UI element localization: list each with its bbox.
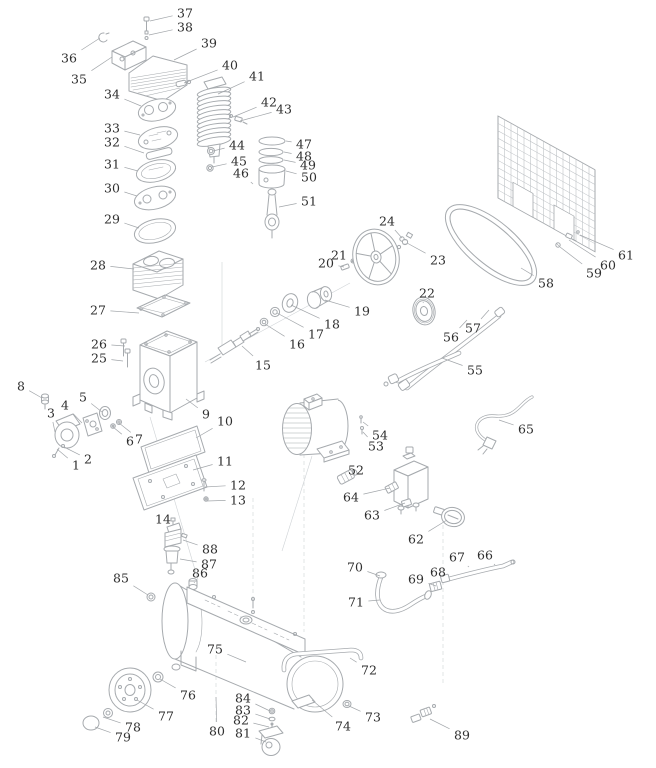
part-label-31: 31: [104, 157, 120, 172]
leader-line-65: [499, 420, 514, 425]
leader-line-7: [119, 423, 131, 432]
piston-illustration: [259, 165, 285, 188]
exploded-parts-diagram: 1234567891011121314151617181920212223242…: [0, 0, 656, 768]
leader-line-76: [160, 679, 176, 688]
leader-line-72: [350, 658, 357, 662]
leader-line-78: [103, 717, 121, 723]
part-label-58: 58: [538, 276, 554, 291]
leader-line-28: [110, 266, 134, 269]
leader-line-43: [240, 112, 272, 121]
leader-line-54: [363, 422, 368, 426]
valve-plate-33-illustration: [136, 123, 180, 153]
part-label-81: 81: [235, 726, 251, 741]
part-label-24: 24: [379, 214, 395, 229]
part-label-73: 73: [365, 710, 381, 725]
leader-line-47: [286, 141, 292, 142]
part-label-50: 50: [301, 170, 317, 185]
leader-line-34: [124, 99, 141, 106]
leader-line-26: [111, 345, 125, 346]
valve-plate-34-illustration: [136, 95, 178, 125]
part-label-21: 21: [331, 248, 347, 263]
part-label-46: 46: [233, 166, 249, 181]
leader-line-36: [81, 38, 100, 50]
leader-line-30: [124, 192, 137, 196]
part-label-10: 10: [217, 414, 233, 429]
part-label-84: 84: [235, 691, 251, 706]
leader-line-8: [29, 391, 42, 398]
part-label-38: 38: [177, 20, 193, 35]
part-label-55: 55: [467, 363, 483, 378]
part-label-11: 11: [217, 454, 233, 469]
leader-line-19: [325, 300, 350, 307]
part-label-74: 74: [335, 719, 351, 734]
motor-pulley-bolt-illustration: [397, 239, 407, 248]
part-label-85: 85: [113, 571, 129, 586]
leader-line-84: [255, 704, 270, 711]
part-label-68: 68: [430, 565, 446, 580]
axle-cap-illustration: [83, 709, 113, 731]
leader-line-59: [560, 247, 582, 264]
leader-line-57: [481, 310, 489, 319]
leader-line-67: [468, 566, 469, 567]
part-label-64: 64: [343, 490, 359, 505]
part-label-89: 89: [454, 728, 470, 743]
part-label-8: 8: [17, 379, 25, 394]
cylinder-gasket-illustration: [137, 295, 190, 317]
leader-line-87: [180, 559, 197, 562]
part-label-54: 54: [372, 428, 388, 443]
part-label-29: 29: [104, 212, 120, 227]
leader-line-13: [207, 500, 226, 501]
part-label-9: 9: [202, 407, 210, 422]
part-label-23: 23: [430, 253, 446, 268]
part-label-71: 71: [348, 595, 364, 610]
leader-line-82: [253, 723, 269, 727]
part-label-62: 62: [408, 532, 424, 547]
part-label-70: 70: [347, 560, 363, 575]
part-label-67: 67: [449, 550, 465, 565]
seal-ring-85-illustration: [147, 593, 155, 601]
head-gasket-29-illustration: [132, 215, 178, 247]
leader-line-25: [111, 360, 123, 361]
leader-line-73: [349, 706, 361, 711]
part-label-34: 34: [104, 87, 120, 102]
part-label-13: 13: [230, 493, 246, 508]
leader-line-85: [133, 586, 148, 595]
leader-line-17: [277, 313, 304, 327]
leader-line-27: [110, 311, 139, 313]
leader-line-6: [113, 427, 122, 434]
part-label-16: 16: [289, 337, 305, 352]
part-label-60: 60: [600, 258, 616, 273]
part-label-52: 52: [348, 463, 364, 478]
motor-illustration: [283, 394, 350, 462]
leader-line-39: [174, 49, 197, 60]
wheel-illustration: [109, 668, 151, 712]
part-label-42: 42: [261, 95, 277, 110]
leader-line-24: [395, 230, 402, 238]
part-label-80: 80: [209, 724, 225, 739]
part-label-3: 3: [47, 406, 55, 421]
leader-line-16: [265, 324, 285, 336]
part-label-32: 32: [104, 135, 120, 150]
part-label-75: 75: [207, 642, 223, 657]
shaft-washers-illustration: [260, 292, 300, 326]
leader-line-81: [255, 738, 266, 742]
part-label-37: 37: [177, 6, 193, 21]
shaft-seal-illustration: [100, 407, 122, 429]
part-label-39: 39: [201, 36, 217, 51]
flywheel-illustration: [348, 225, 405, 289]
part-label-18: 18: [324, 317, 340, 332]
leader-line-50: [286, 171, 297, 174]
part-label-87: 87: [201, 557, 217, 572]
leader-line-38: [149, 30, 173, 35]
leader-line-23: [407, 243, 426, 253]
cylinder-illustration: [133, 251, 183, 299]
leader-line-1: [57, 449, 68, 458]
leader-line-15: [242, 346, 253, 356]
part-label-79: 79: [115, 730, 131, 745]
valve-plate-30-illustration: [132, 182, 178, 214]
part-label-43: 43: [276, 102, 292, 117]
part-label-51: 51: [301, 194, 317, 209]
part-label-12: 12: [230, 478, 246, 493]
part-label-33: 33: [104, 121, 120, 136]
part-label-5: 5: [79, 390, 87, 405]
inlet-tube-illustration: [384, 353, 459, 386]
part-label-56: 56: [443, 330, 459, 345]
part-label-77: 77: [158, 709, 174, 724]
discharge-pipe-illustration: [398, 307, 506, 392]
leader-line-35: [91, 57, 112, 71]
part-label-7: 7: [135, 432, 143, 447]
part-label-69: 69: [408, 572, 424, 587]
leader-line-29: [124, 223, 139, 228]
pump-illustration: [53, 414, 81, 458]
leader-line-5: [91, 404, 102, 413]
part-label-1: 1: [72, 458, 80, 473]
part-label-4: 4: [61, 398, 69, 413]
pulley-hub-illustration: [306, 286, 333, 310]
leader-line-53: [363, 432, 368, 437]
part-label-40: 40: [222, 58, 238, 73]
leader-line-33: [124, 131, 140, 135]
leader-line-2: [64, 447, 80, 455]
leader-line-64: [363, 488, 390, 494]
leader-line-62: [428, 520, 447, 531]
bent-tube-illustration: [376, 572, 433, 611]
leader-line-51: [279, 204, 297, 208]
leader-line-37: [150, 16, 173, 21]
crankshaft-illustration: [210, 328, 260, 364]
part-label-26: 26: [91, 337, 107, 352]
leader-line-48: [284, 152, 292, 154]
part-label-6: 6: [126, 434, 134, 449]
leader-line-75: [227, 654, 246, 662]
crankcase-bolts-illustration: [121, 339, 130, 367]
crankcase-illustration: [133, 331, 204, 420]
part-label-27: 27: [90, 303, 106, 318]
leader-line-31: [124, 167, 138, 171]
part-label-30: 30: [104, 181, 120, 196]
leader-line-89: [430, 719, 450, 729]
leader-line-79: [95, 727, 111, 733]
part-label-28: 28: [90, 258, 106, 273]
part-label-44: 44: [229, 138, 245, 153]
leader-line-32: [124, 146, 144, 153]
part-label-63: 63: [364, 508, 380, 523]
part-label-2: 2: [84, 452, 92, 467]
part-labels: 1234567891011121314151617181920212223242…: [17, 6, 634, 745]
part-label-61: 61: [618, 248, 634, 263]
leader-line-12: [205, 486, 226, 487]
part-label-36: 36: [61, 51, 77, 66]
part-label-19: 19: [354, 304, 370, 319]
wheel-washer-illustration: [153, 672, 163, 682]
part-label-15: 15: [255, 358, 271, 373]
head-bolt-illustration: [144, 17, 149, 40]
part-label-17: 17: [308, 327, 324, 342]
part-label-25: 25: [91, 351, 107, 366]
leader-line-49: [284, 160, 296, 162]
part-label-72: 72: [361, 663, 377, 678]
part-label-22: 22: [419, 286, 435, 301]
connecting-rod-illustration: [265, 189, 279, 238]
leader-line-55: [442, 358, 463, 366]
leader-line-3: [53, 422, 55, 432]
pump-plate-illustration: [83, 413, 102, 436]
head-screw-illustration: [230, 115, 248, 125]
part-label-35: 35: [71, 72, 87, 87]
leader-line-45: [212, 164, 227, 167]
part-label-88: 88: [202, 542, 218, 557]
piston-rings-illustration: [259, 137, 285, 163]
part-label-14: 14: [155, 512, 171, 527]
retaining-clip-illustration: [99, 33, 109, 42]
part-label-41: 41: [249, 69, 265, 84]
leader-line-88: [183, 540, 198, 545]
valve-plate-31-illustration: [134, 156, 178, 186]
leader-line-83: [255, 714, 270, 719]
diagram-canvas: 1234567891011121314151617181920212223242…: [0, 0, 656, 768]
part-label-57: 57: [465, 321, 481, 336]
leader-line-66: [494, 564, 495, 565]
motor-bolts-illustration: [360, 416, 364, 434]
leader-line-42: [233, 107, 257, 117]
part-label-76: 76: [180, 688, 196, 703]
leader-line-46: [251, 182, 253, 184]
part-label-66: 66: [477, 548, 493, 563]
part-label-65: 65: [518, 422, 534, 437]
